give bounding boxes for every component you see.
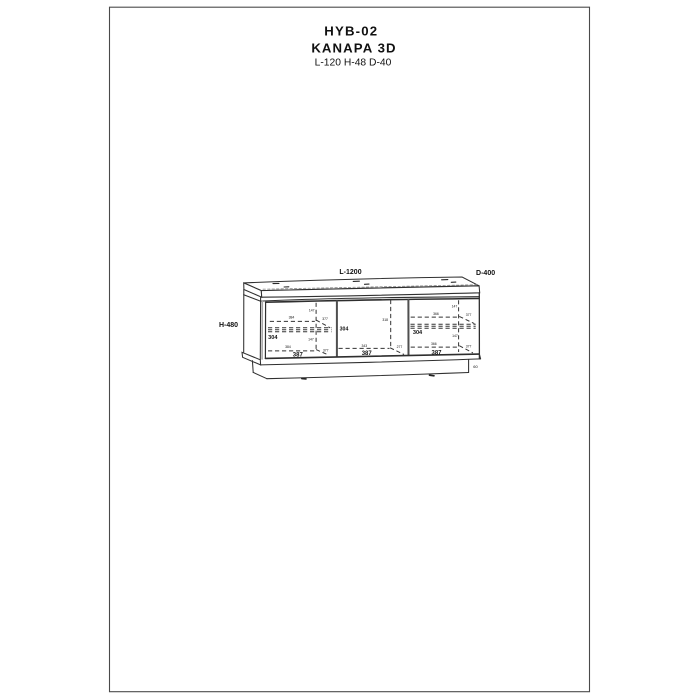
svg-text:384: 384 — [285, 345, 291, 349]
svg-text:377: 377 — [466, 345, 472, 349]
svg-text:D-400: D-400 — [476, 270, 495, 277]
svg-text:H-480: H-480 — [219, 322, 238, 329]
svg-text:318: 318 — [382, 318, 388, 322]
svg-text:304: 304 — [340, 327, 349, 333]
svg-text:L-120 H-48 D-40: L-120 H-48 D-40 — [315, 57, 392, 68]
svg-text:387: 387 — [293, 353, 304, 359]
svg-text:147: 147 — [309, 308, 315, 312]
svg-text:HYB-02: HYB-02 — [324, 24, 378, 39]
svg-text:147: 147 — [308, 338, 314, 342]
svg-text:384: 384 — [289, 315, 295, 319]
svg-text:366: 366 — [433, 312, 439, 316]
svg-text:377: 377 — [323, 349, 329, 353]
svg-text:60: 60 — [473, 364, 478, 369]
svg-text:343: 343 — [361, 344, 367, 348]
svg-text:387: 387 — [431, 350, 442, 356]
svg-text:L-1200: L-1200 — [339, 269, 361, 276]
svg-text:147: 147 — [452, 305, 458, 309]
svg-text:147: 147 — [452, 334, 458, 338]
svg-text:377: 377 — [322, 317, 328, 321]
svg-text:304: 304 — [268, 335, 278, 341]
svg-text:KANAPA 3D: KANAPA 3D — [311, 40, 396, 55]
svg-text:304: 304 — [413, 330, 423, 336]
svg-text:366: 366 — [431, 342, 437, 346]
svg-text:277: 277 — [397, 345, 403, 349]
svg-text:387: 387 — [362, 351, 373, 357]
svg-text:377: 377 — [466, 313, 472, 317]
